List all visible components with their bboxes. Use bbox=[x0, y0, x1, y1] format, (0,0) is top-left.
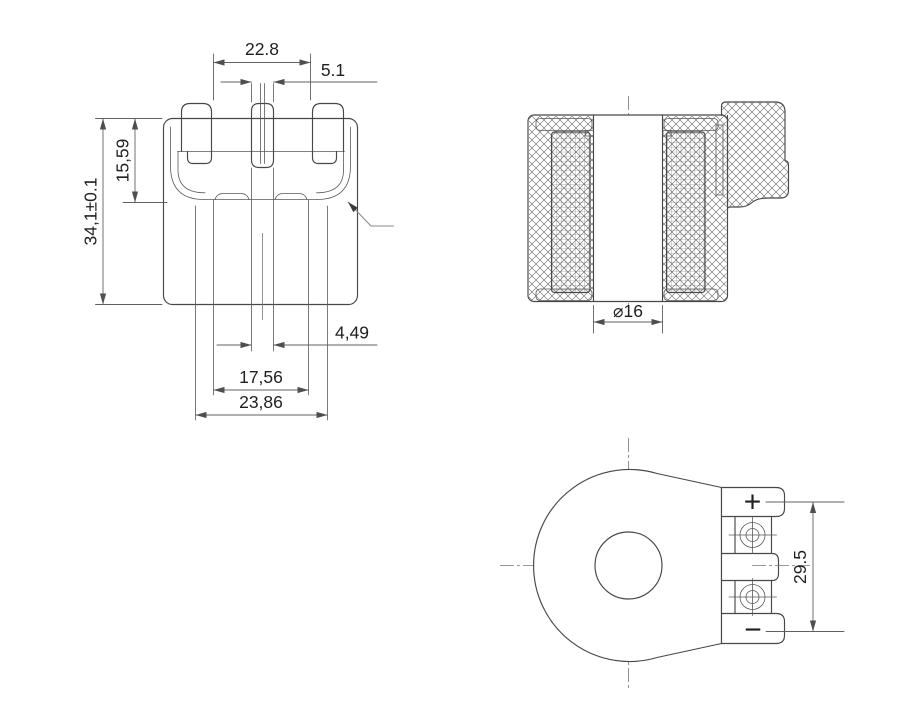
arrowhead bbox=[132, 192, 138, 203]
dim-text-inner-width: 17,56 bbox=[239, 367, 283, 387]
winding-left-grid bbox=[552, 132, 591, 293]
front-view: 22.8 5.1 15,59 34,1±0.1 bbox=[81, 39, 395, 420]
extension-line bbox=[214, 54, 311, 100]
dim-text-outer-width: 23,86 bbox=[239, 392, 283, 412]
dim-inner-width: 17,56 bbox=[214, 367, 309, 393]
section-view: ⌀16 bbox=[528, 96, 789, 333]
arrowhead bbox=[100, 119, 106, 130]
dim-text-total-height: 34,1±0.1 bbox=[81, 178, 101, 246]
winding-right-grid bbox=[667, 132, 706, 293]
blade-extension-stubs bbox=[252, 84, 274, 103]
polarity-positive-label: + bbox=[744, 486, 762, 519]
arrowhead bbox=[241, 342, 252, 348]
dim-text-bore: ⌀16 bbox=[613, 301, 643, 321]
arrowhead bbox=[300, 59, 311, 65]
dim-upper-height: 15,59 bbox=[113, 119, 168, 203]
dim-slot-width: 4,49 bbox=[217, 323, 377, 349]
dim-text-upper-height: 15,59 bbox=[113, 139, 133, 183]
arrowhead bbox=[810, 502, 816, 513]
bottom-view: + − 29.5 bbox=[500, 438, 844, 691]
dim-text-slot-width: 4,49 bbox=[335, 323, 369, 343]
technical-drawing-canvas: 22.8 5.1 15,59 34,1±0.1 bbox=[0, 0, 900, 720]
arrowhead bbox=[132, 119, 138, 130]
arrowhead bbox=[100, 294, 106, 305]
arrowhead bbox=[652, 319, 663, 325]
dim-outer-width: 23,86 bbox=[196, 392, 328, 418]
arrowhead bbox=[810, 621, 816, 632]
dim-text-center-tab: 5.1 bbox=[321, 60, 345, 80]
arrowhead bbox=[196, 412, 207, 418]
dim-text-tab-span: 22.8 bbox=[245, 39, 279, 59]
arrowhead bbox=[274, 342, 285, 348]
arrowhead bbox=[241, 79, 252, 85]
polarity-negative-label: − bbox=[744, 614, 762, 647]
arrowhead bbox=[594, 319, 605, 325]
dim-center-tab: 5.1 bbox=[221, 60, 377, 85]
drawing-svg: 22.8 5.1 15,59 34,1±0.1 bbox=[0, 0, 900, 720]
arrowhead bbox=[214, 387, 225, 393]
coil-round-body bbox=[534, 470, 722, 662]
dim-tab-span: 22.8 bbox=[214, 39, 311, 100]
arrowhead bbox=[317, 412, 328, 418]
terminal-housing-hatch bbox=[722, 102, 789, 209]
arrowhead bbox=[274, 79, 285, 85]
dim-text-terminal-pitch: 29.5 bbox=[790, 550, 810, 584]
arrowhead bbox=[298, 387, 309, 393]
arrowhead bbox=[214, 59, 225, 65]
dim-bore-diameter: ⌀16 bbox=[594, 301, 663, 333]
